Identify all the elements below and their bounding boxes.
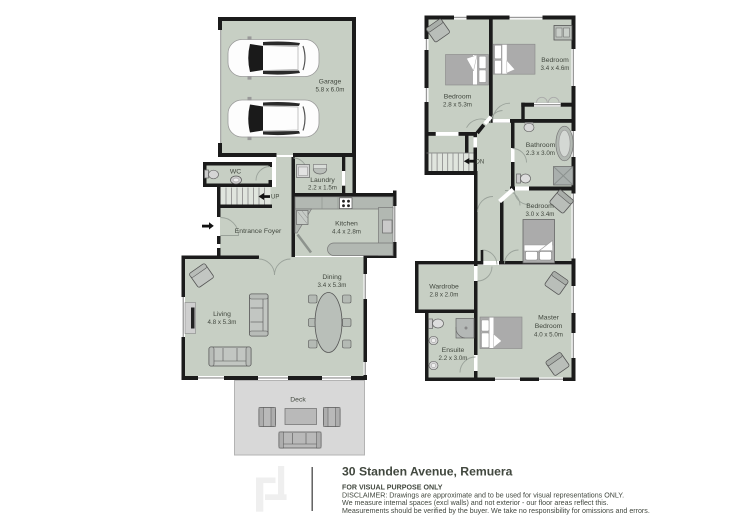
svg-text:4.4 x 2.8m: 4.4 x 2.8m: [332, 229, 361, 236]
svg-text:2.2 x 1.5m: 2.2 x 1.5m: [308, 185, 337, 192]
svg-text:2.8 x 5.3m: 2.8 x 5.3m: [443, 102, 472, 109]
svg-text:Measurements should be verifie: Measurements should be verified by the b…: [342, 507, 650, 515]
svg-text:5.8 x 6.0m: 5.8 x 6.0m: [316, 87, 345, 94]
svg-text:4.8 x 5.3m: 4.8 x 5.3m: [208, 319, 237, 326]
svg-text:Living: Living: [213, 311, 231, 318]
svg-text:DN: DN: [476, 160, 485, 166]
svg-text:Bedroom: Bedroom: [541, 57, 569, 64]
svg-text:4.0 x 5.0m: 4.0 x 5.0m: [534, 332, 563, 339]
svg-text:Wardrobe: Wardrobe: [429, 284, 459, 291]
svg-text:Garage: Garage: [319, 79, 342, 86]
svg-text:Deck: Deck: [290, 397, 306, 404]
svg-text:We measure internal spaces (ex: We measure internal spaces (excl walls) …: [342, 499, 608, 507]
svg-text:Kitchen: Kitchen: [335, 221, 358, 228]
svg-text:3.4 x 5.3m: 3.4 x 5.3m: [318, 282, 347, 289]
svg-text:30 Standen Avenue, Remuera: 30 Standen Avenue, Remuera: [342, 465, 513, 479]
svg-text:Dining: Dining: [322, 274, 341, 281]
svg-text:Ensuite: Ensuite: [442, 347, 465, 354]
svg-text:Bedroom: Bedroom: [444, 94, 472, 101]
svg-text:3.0 x 3.4m: 3.0 x 3.4m: [526, 211, 555, 218]
svg-text:Bedroom: Bedroom: [526, 203, 554, 210]
svg-text:Master: Master: [538, 315, 560, 322]
svg-text:2.8 x 2.0m: 2.8 x 2.0m: [430, 292, 459, 299]
svg-text:DISCLAIMER: Drawings are appr: DISCLAIMER: Drawings are approximate and…: [342, 491, 624, 499]
svg-text:2.3 x 3.0m: 2.3 x 3.0m: [526, 150, 555, 157]
svg-text:3.4 x 4.6m: 3.4 x 4.6m: [541, 65, 570, 72]
svg-text:WC: WC: [230, 169, 241, 176]
svg-text:Bedroom: Bedroom: [535, 323, 563, 330]
svg-text:Entrance Foyer: Entrance Foyer: [235, 228, 282, 235]
svg-text:UP: UP: [271, 195, 279, 201]
svg-text:Laundry: Laundry: [310, 177, 335, 184]
svg-text:2.2 x 3.0m: 2.2 x 3.0m: [439, 355, 468, 362]
svg-text:FOR VISUAL PURPOSE ONLY: FOR VISUAL PURPOSE ONLY: [342, 484, 443, 492]
svg-text:Bathroom: Bathroom: [526, 142, 556, 149]
